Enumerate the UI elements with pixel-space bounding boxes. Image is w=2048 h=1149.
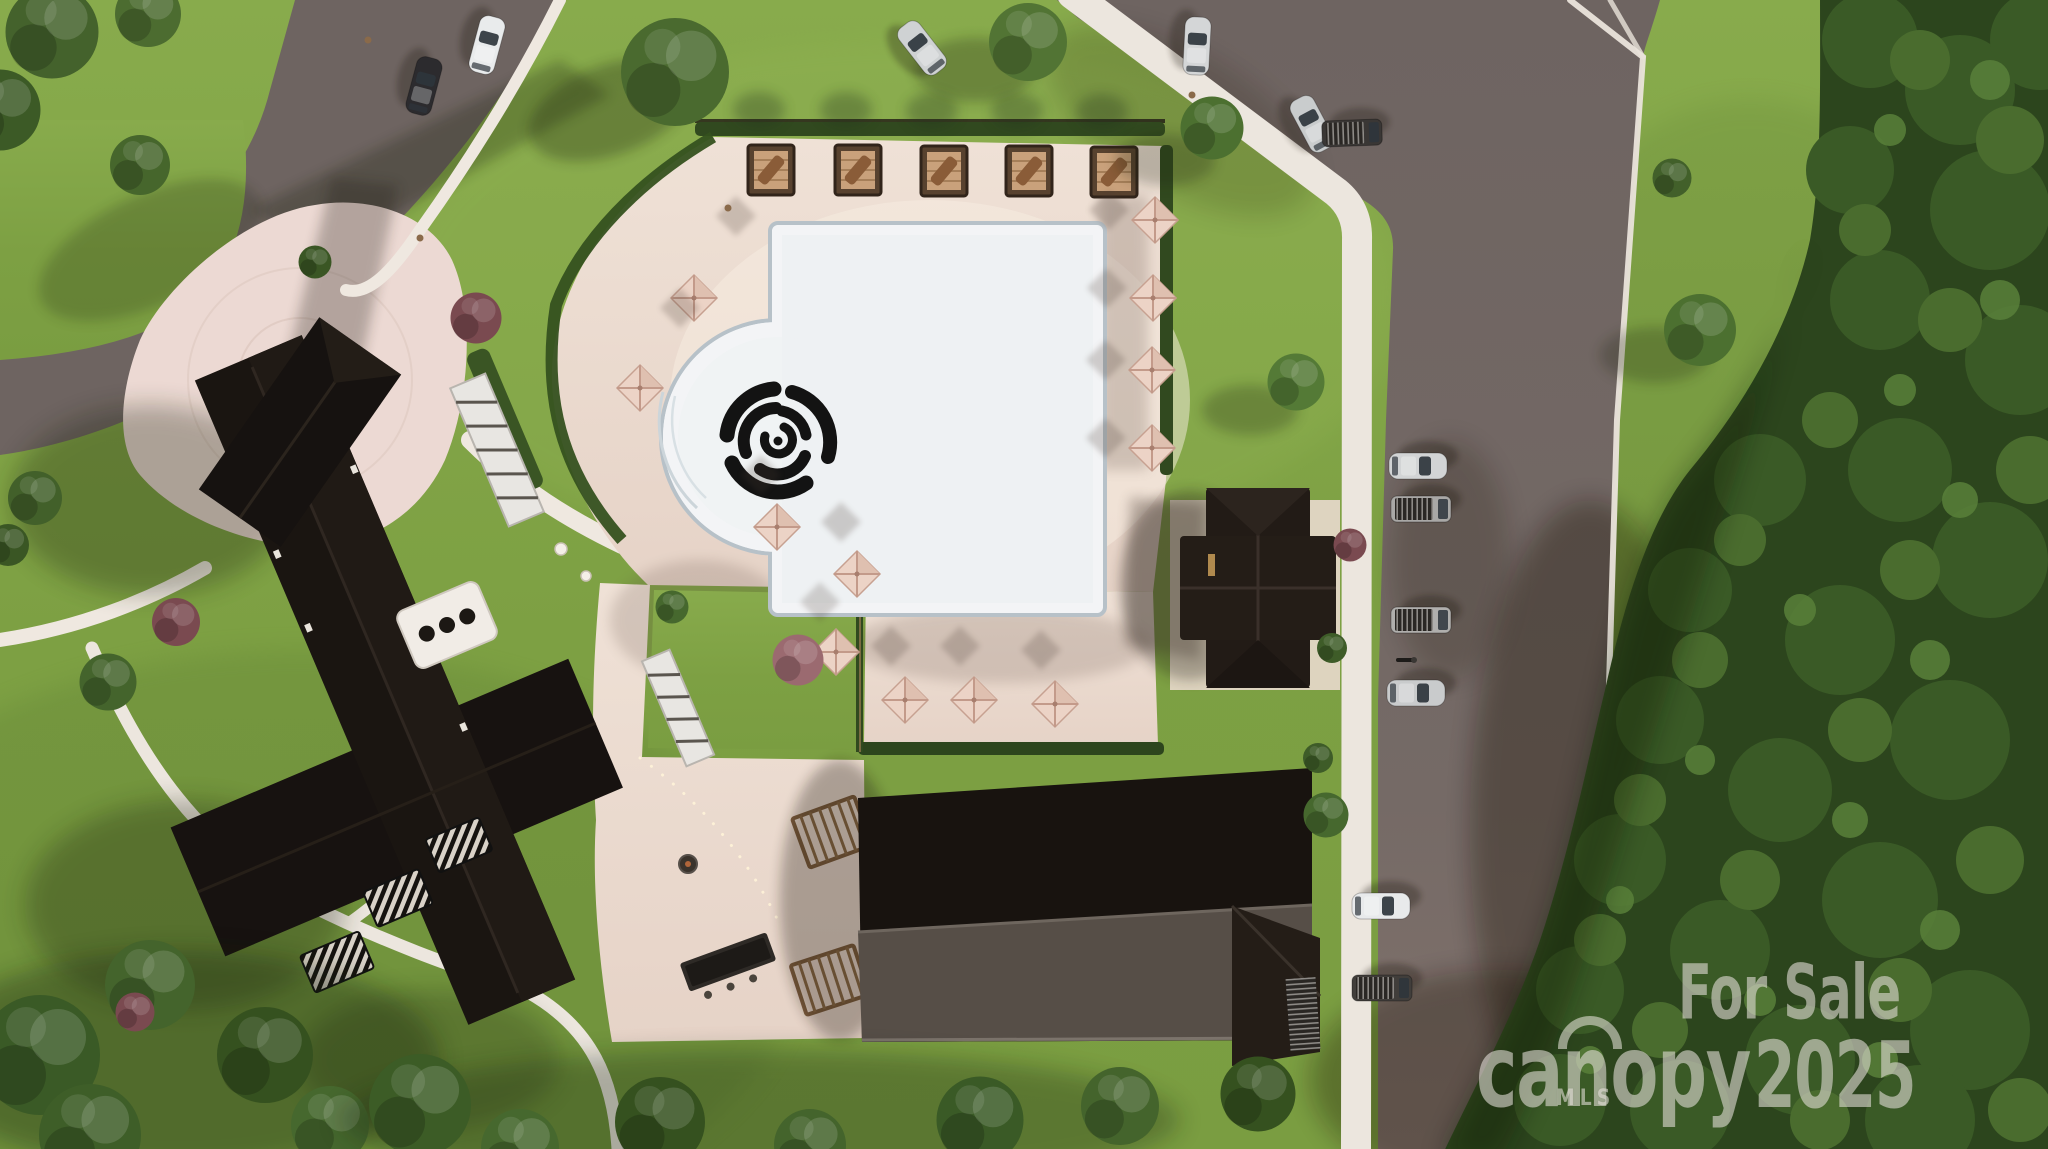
mls-watermark: MLS	[1556, 1086, 1615, 1111]
event-barn	[780, 760, 1320, 1066]
pool-house	[1120, 488, 1336, 688]
year-watermark: 2025	[1754, 1022, 1915, 1129]
aerial-site-rendering: For Sale canopy 2025 MLS	[0, 0, 2048, 1149]
